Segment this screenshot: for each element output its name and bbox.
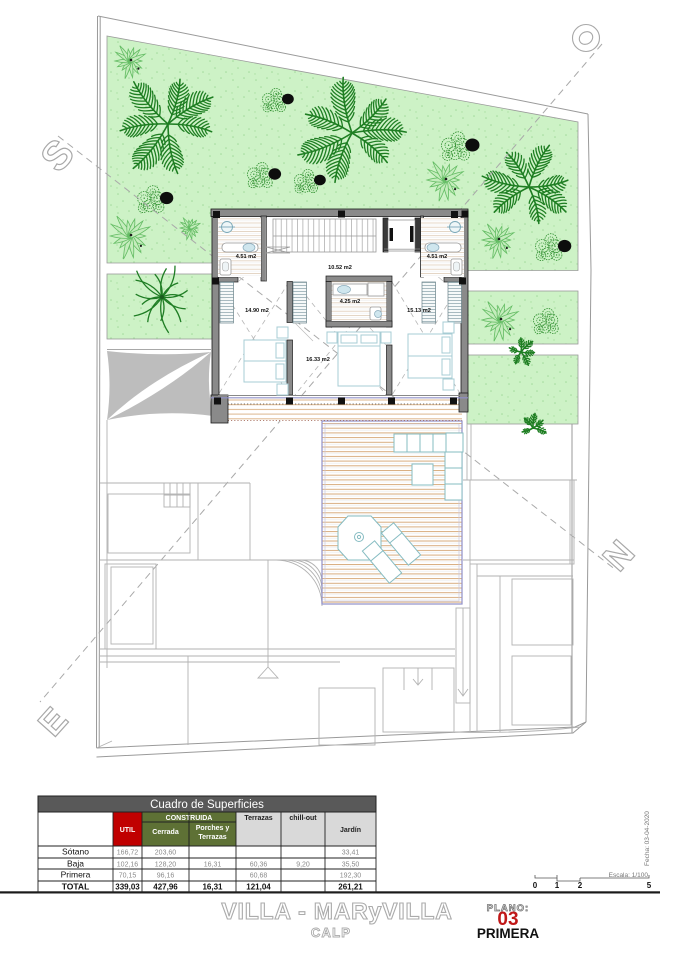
svg-text:16.33 m2: 16.33 m2 [306,357,330,363]
svg-text:10.52 m2: 10.52 m2 [328,265,352,271]
svg-text:Baja: Baja [67,859,84,869]
svg-text:Terrazas: Terrazas [198,834,226,841]
svg-text:203,60: 203,60 [155,850,177,857]
svg-text:Terrazas: Terrazas [244,815,272,822]
svg-text:PRIMERA: PRIMERA [477,926,540,941]
svg-text:chill-out: chill-out [289,815,317,822]
svg-text:35,50: 35,50 [342,862,360,869]
svg-text:2: 2 [578,881,583,890]
svg-text:Fecha: 03-04-2020: Fecha: 03-04-2020 [644,811,651,866]
svg-text:TOTAL: TOTAL [62,882,90,892]
svg-text:16,31: 16,31 [202,883,223,892]
svg-text:339,03: 339,03 [115,883,140,892]
svg-text:5: 5 [647,881,652,890]
svg-text:33,41: 33,41 [342,850,360,857]
svg-text:Sótano: Sótano [62,847,89,857]
svg-text:4.51 m2: 4.51 m2 [236,254,257,260]
svg-text:VILLA - MARyVILLA: VILLA - MARyVILLA [221,898,452,924]
svg-text:1: 1 [555,881,560,890]
svg-text:4.51 m2: 4.51 m2 [427,254,448,260]
svg-text:4.25 m2: 4.25 m2 [340,299,361,305]
svg-text:UTIL: UTIL [120,827,136,834]
svg-text:Jardín: Jardín [340,827,361,834]
svg-text:Porches y: Porches y [196,825,230,832]
svg-text:9,20: 9,20 [296,862,310,869]
svg-text:Cerrada: Cerrada [152,829,179,836]
svg-text:15.13 m2: 15.13 m2 [407,308,431,314]
svg-text:Escala: 1/100: Escala: 1/100 [609,872,649,879]
svg-text:14.90 m2: 14.90 m2 [245,308,269,314]
svg-text:192,30: 192,30 [340,873,362,880]
svg-text:60,68: 60,68 [250,873,268,880]
svg-text:128,20: 128,20 [155,862,177,869]
svg-text:261,21: 261,21 [338,883,363,892]
svg-text:70,15: 70,15 [119,873,137,880]
svg-text:96,16: 96,16 [157,873,175,880]
svg-text:102,16: 102,16 [117,862,139,869]
svg-text:427,96: 427,96 [153,883,178,892]
svg-text:121,04: 121,04 [246,883,271,892]
svg-text:Cuadro de Superficies: Cuadro de Superficies [150,799,264,811]
svg-text:Primera: Primera [61,870,91,880]
svg-text:0: 0 [533,881,538,890]
svg-text:CALP: CALP [311,925,351,940]
svg-text:60,36: 60,36 [250,862,268,869]
svg-text:166,72: 166,72 [117,850,139,857]
svg-text:16,31: 16,31 [204,862,222,869]
